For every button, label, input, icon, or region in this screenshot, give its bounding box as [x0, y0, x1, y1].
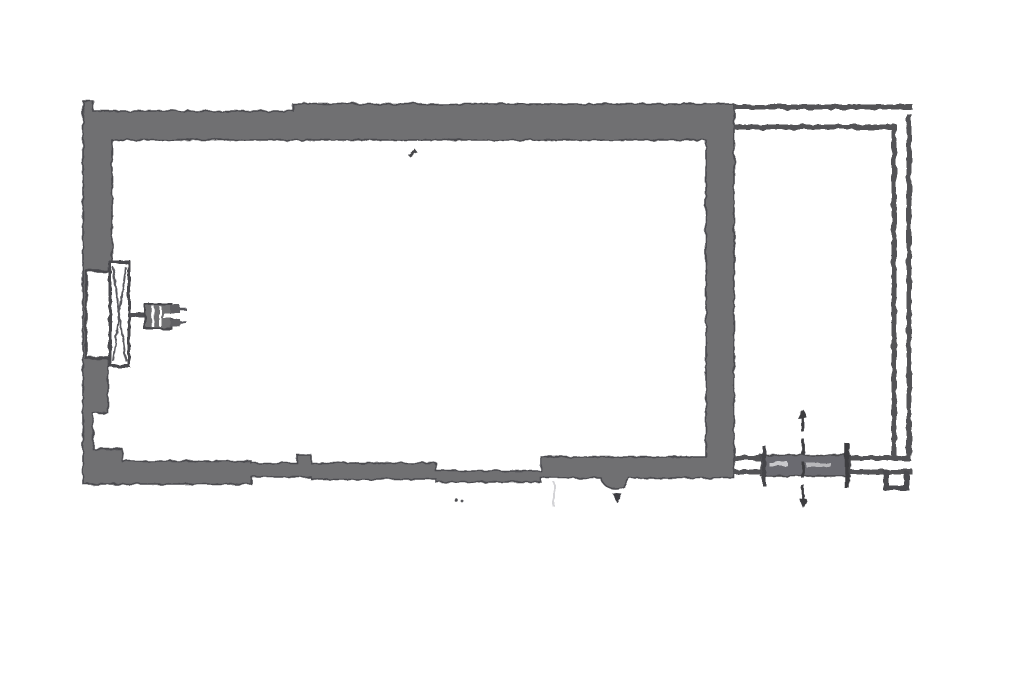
- fan-tooth-top: [170, 305, 180, 313]
- fan-tooth-bottom: [170, 319, 180, 327]
- scan-speck-dot-2: [461, 500, 464, 503]
- main-walls: [83, 101, 734, 489]
- floor-plan-drawing: [0, 0, 1024, 683]
- scan-speck-mark: [408, 149, 417, 157]
- door-centerline-tip-top: [798, 409, 807, 419]
- plan-geometry: [83, 101, 913, 508]
- scan-speck-dot-1: [454, 498, 458, 502]
- fan-body-gap: [163, 313, 180, 318]
- door-centerline-tip-bottom: [799, 498, 807, 508]
- door-leaf-streak-1: [769, 462, 788, 466]
- door-leaf-streak-2: [806, 463, 831, 467]
- scanned-floor-plan-page: [0, 0, 1024, 683]
- scan-speck-triangle: [612, 493, 622, 503]
- window-opening: [86, 271, 111, 358]
